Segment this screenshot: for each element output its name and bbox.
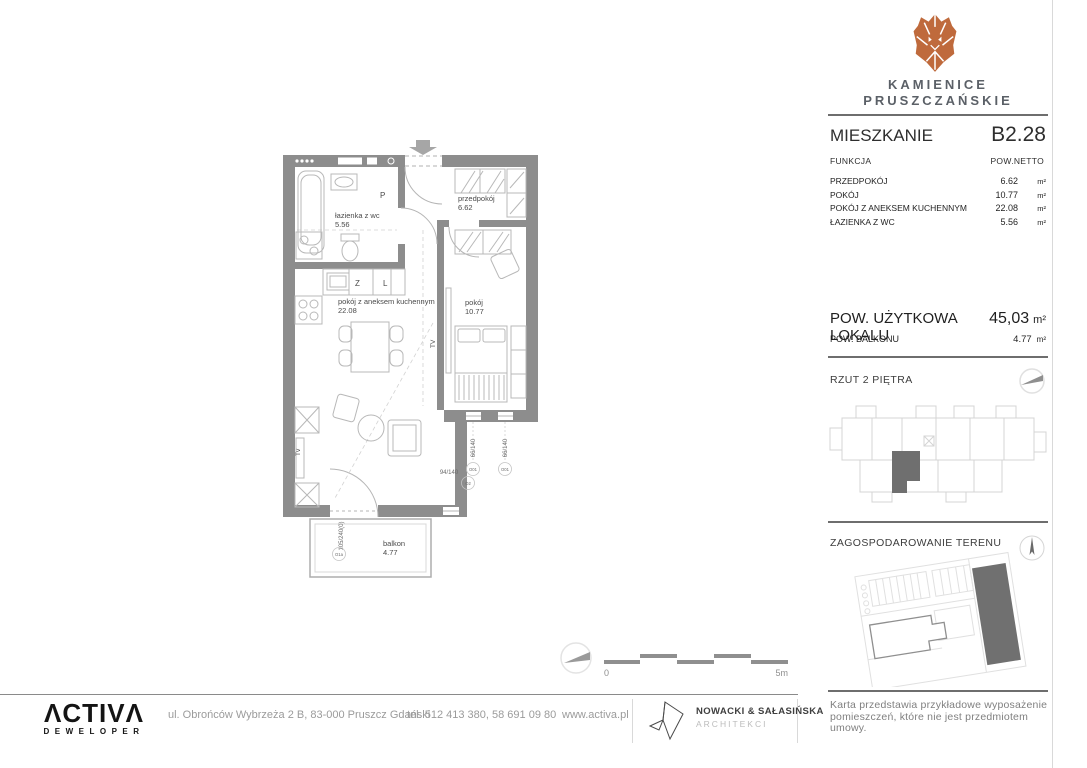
- balcony-outline: [310, 519, 431, 577]
- divider-areas: [828, 356, 1048, 358]
- row-name: ŁAZIENKA Z WC: [830, 217, 968, 227]
- apartment-floorplan: łazienka z wc 5.56 przedpokój 6.62 pokój…: [283, 138, 543, 588]
- project-name-line1: KAMIENICE: [828, 77, 1048, 92]
- disclaimer: Karta przedstawia przykładowe wyposażeni…: [830, 700, 1048, 735]
- highlighted-unit: [892, 451, 920, 493]
- row-name: POKÓJ: [830, 190, 968, 200]
- window-size-1: 66/140: [471, 438, 477, 457]
- bedroom-armchair: [490, 248, 520, 279]
- developer-address: ul. Obrońców Wybrzeża 2 B, 83-000 Pruszc…: [168, 709, 430, 721]
- tv2-label: Tv: [295, 448, 302, 456]
- furniture: [295, 169, 526, 507]
- tv-label: TV: [430, 339, 437, 348]
- window-slots: [443, 412, 513, 515]
- living-area: 22.08: [338, 306, 357, 315]
- brand-lion-logo: [913, 13, 957, 73]
- architects-name: NOWACKI & SAŁASIŃSKA: [696, 706, 824, 717]
- entry-door: [405, 140, 442, 166]
- window-code-3: O2: [465, 481, 471, 486]
- row-area: 6.62: [968, 176, 1018, 186]
- scale-start: 0: [604, 668, 609, 678]
- divider-floorview: [828, 521, 1048, 523]
- toilet: [342, 241, 358, 261]
- armchair: [332, 394, 359, 423]
- developer-sub: DEWELOPER: [34, 727, 154, 736]
- table-row: POKÓJ Z ANEKSEM KUCHENNYM 22.08 m²: [830, 203, 1046, 217]
- site-plan-title: ZAGOSPODAROWANIE TERENU: [830, 537, 1001, 549]
- site-highlighted-building: [972, 563, 1021, 665]
- table-row: ŁAZIENKA Z WC 5.56 m²: [830, 217, 1046, 231]
- row-area: 5.56: [968, 217, 1018, 227]
- divider-siteplan: [828, 690, 1048, 692]
- scale-bar: 0 5m: [604, 648, 794, 678]
- disclaimer-line1: Karta przedstawia przykładowe wyposażeni…: [830, 700, 1048, 712]
- balcony-area-label: POW. BALKONU: [830, 334, 1013, 344]
- window-size-2: 66/140: [503, 438, 509, 457]
- stove: [295, 296, 322, 324]
- entry-arrow-icon: [409, 140, 437, 155]
- developer-website: www.activa.pl: [562, 709, 629, 721]
- bathroom-label: łazienka z wc: [335, 211, 380, 220]
- window-annotations: 66/140 66/140 O01 O2 O01 94/140 105/240(…: [333, 422, 512, 561]
- site-plan: [828, 552, 1048, 687]
- guide-lines: [297, 230, 433, 498]
- row-unit: m²: [1018, 204, 1046, 213]
- shelf: [296, 438, 304, 478]
- scale-end: 5m: [775, 668, 788, 678]
- divider-brand: [828, 114, 1048, 116]
- footer-vdivider-1: [632, 699, 633, 743]
- coffee-table: [358, 415, 384, 441]
- window-code-2: O01: [501, 467, 510, 472]
- balcony-area: 4.77: [383, 548, 398, 557]
- row-unit: m²: [1018, 218, 1046, 227]
- architects-block: NOWACKI & SAŁASIŃSKA ARCHITEKCI: [696, 706, 824, 729]
- dining-table: [351, 322, 389, 372]
- row-name: POKÓJ Z ANEKSEM KUCHENNYM: [830, 203, 968, 213]
- row-name: PRZEDPOKÓJ: [830, 176, 968, 186]
- table-row: PRZEDPOKÓJ 6.62 m²: [830, 176, 1046, 190]
- project-name-line2: PRUSZCZAŃSKIE: [828, 93, 1048, 108]
- area-table: PRZEDPOKÓJ 6.62 m² POKÓJ 10.77 m² POKÓJ …: [830, 176, 1046, 230]
- bedroom-label: pokój: [465, 298, 483, 307]
- usable-area-unit: m²: [1033, 314, 1046, 326]
- footer-divider: [0, 694, 798, 695]
- window-code-4: O1a: [335, 552, 344, 557]
- outlined-building: [870, 613, 948, 658]
- balcony-area-unit: m²: [1037, 335, 1046, 344]
- bedroom-area: 10.77: [465, 307, 484, 316]
- balcony-area-row: POW. BALKONU 4.77 m²: [830, 334, 1046, 345]
- floor-compass-icon: [1018, 367, 1046, 395]
- architects-logo-icon: [643, 698, 691, 742]
- bedroom-cabinet: [511, 326, 526, 398]
- row-area: 22.08: [968, 203, 1018, 213]
- row-unit: m²: [1018, 177, 1046, 186]
- scale-compass-icon: [558, 640, 594, 676]
- floor-view-title: RZUT 2 PIĘTRA: [830, 374, 913, 386]
- developer-logo-text: ΛCTIVΛ: [34, 700, 154, 726]
- hall-area: 6.62: [458, 203, 473, 212]
- window-size-3: 94/140: [440, 470, 459, 476]
- living-label: pokój z aneksem kuchennym: [338, 297, 435, 306]
- window-size-4: 105/240(0): [339, 521, 345, 550]
- table-row: POKÓJ 10.77 m²: [830, 190, 1046, 204]
- apartment-card-page: łazienka z wc 5.56 przedpokój 6.62 pokój…: [0, 0, 1087, 768]
- developer-logo: ΛCTIVΛ DEWELOPER: [34, 700, 154, 736]
- tv-board: [446, 288, 451, 373]
- balcony-area-value: 4.77: [1013, 334, 1032, 345]
- hall-label: przedpokój: [458, 194, 495, 203]
- toilet-tank: [341, 234, 359, 241]
- dishwasher-label: Z: [355, 279, 360, 288]
- row-area: 10.77: [968, 190, 1018, 200]
- architects-sub: ARCHITEKCI: [696, 719, 824, 729]
- window-code-1: O01: [469, 467, 478, 472]
- bathroom-area: 5.56: [335, 220, 350, 229]
- balcony-label: balkon: [383, 539, 405, 548]
- disclaimer-line2: pomieszczeń, które nie jest przedmiotem …: [830, 712, 1048, 735]
- fridge-label: L: [383, 279, 388, 288]
- page-edge-line: [1052, 0, 1053, 768]
- developer-phone: tel. 512 413 380, 58 691 09 80: [407, 709, 556, 721]
- row-unit: m²: [1018, 191, 1046, 200]
- usable-area-value: 45,03: [989, 310, 1029, 328]
- floor-overview-plan: [828, 396, 1048, 514]
- col-area: POW.NETTO: [828, 156, 1044, 166]
- washer-label: P: [380, 191, 385, 200]
- unit-number: B2.28: [828, 123, 1046, 147]
